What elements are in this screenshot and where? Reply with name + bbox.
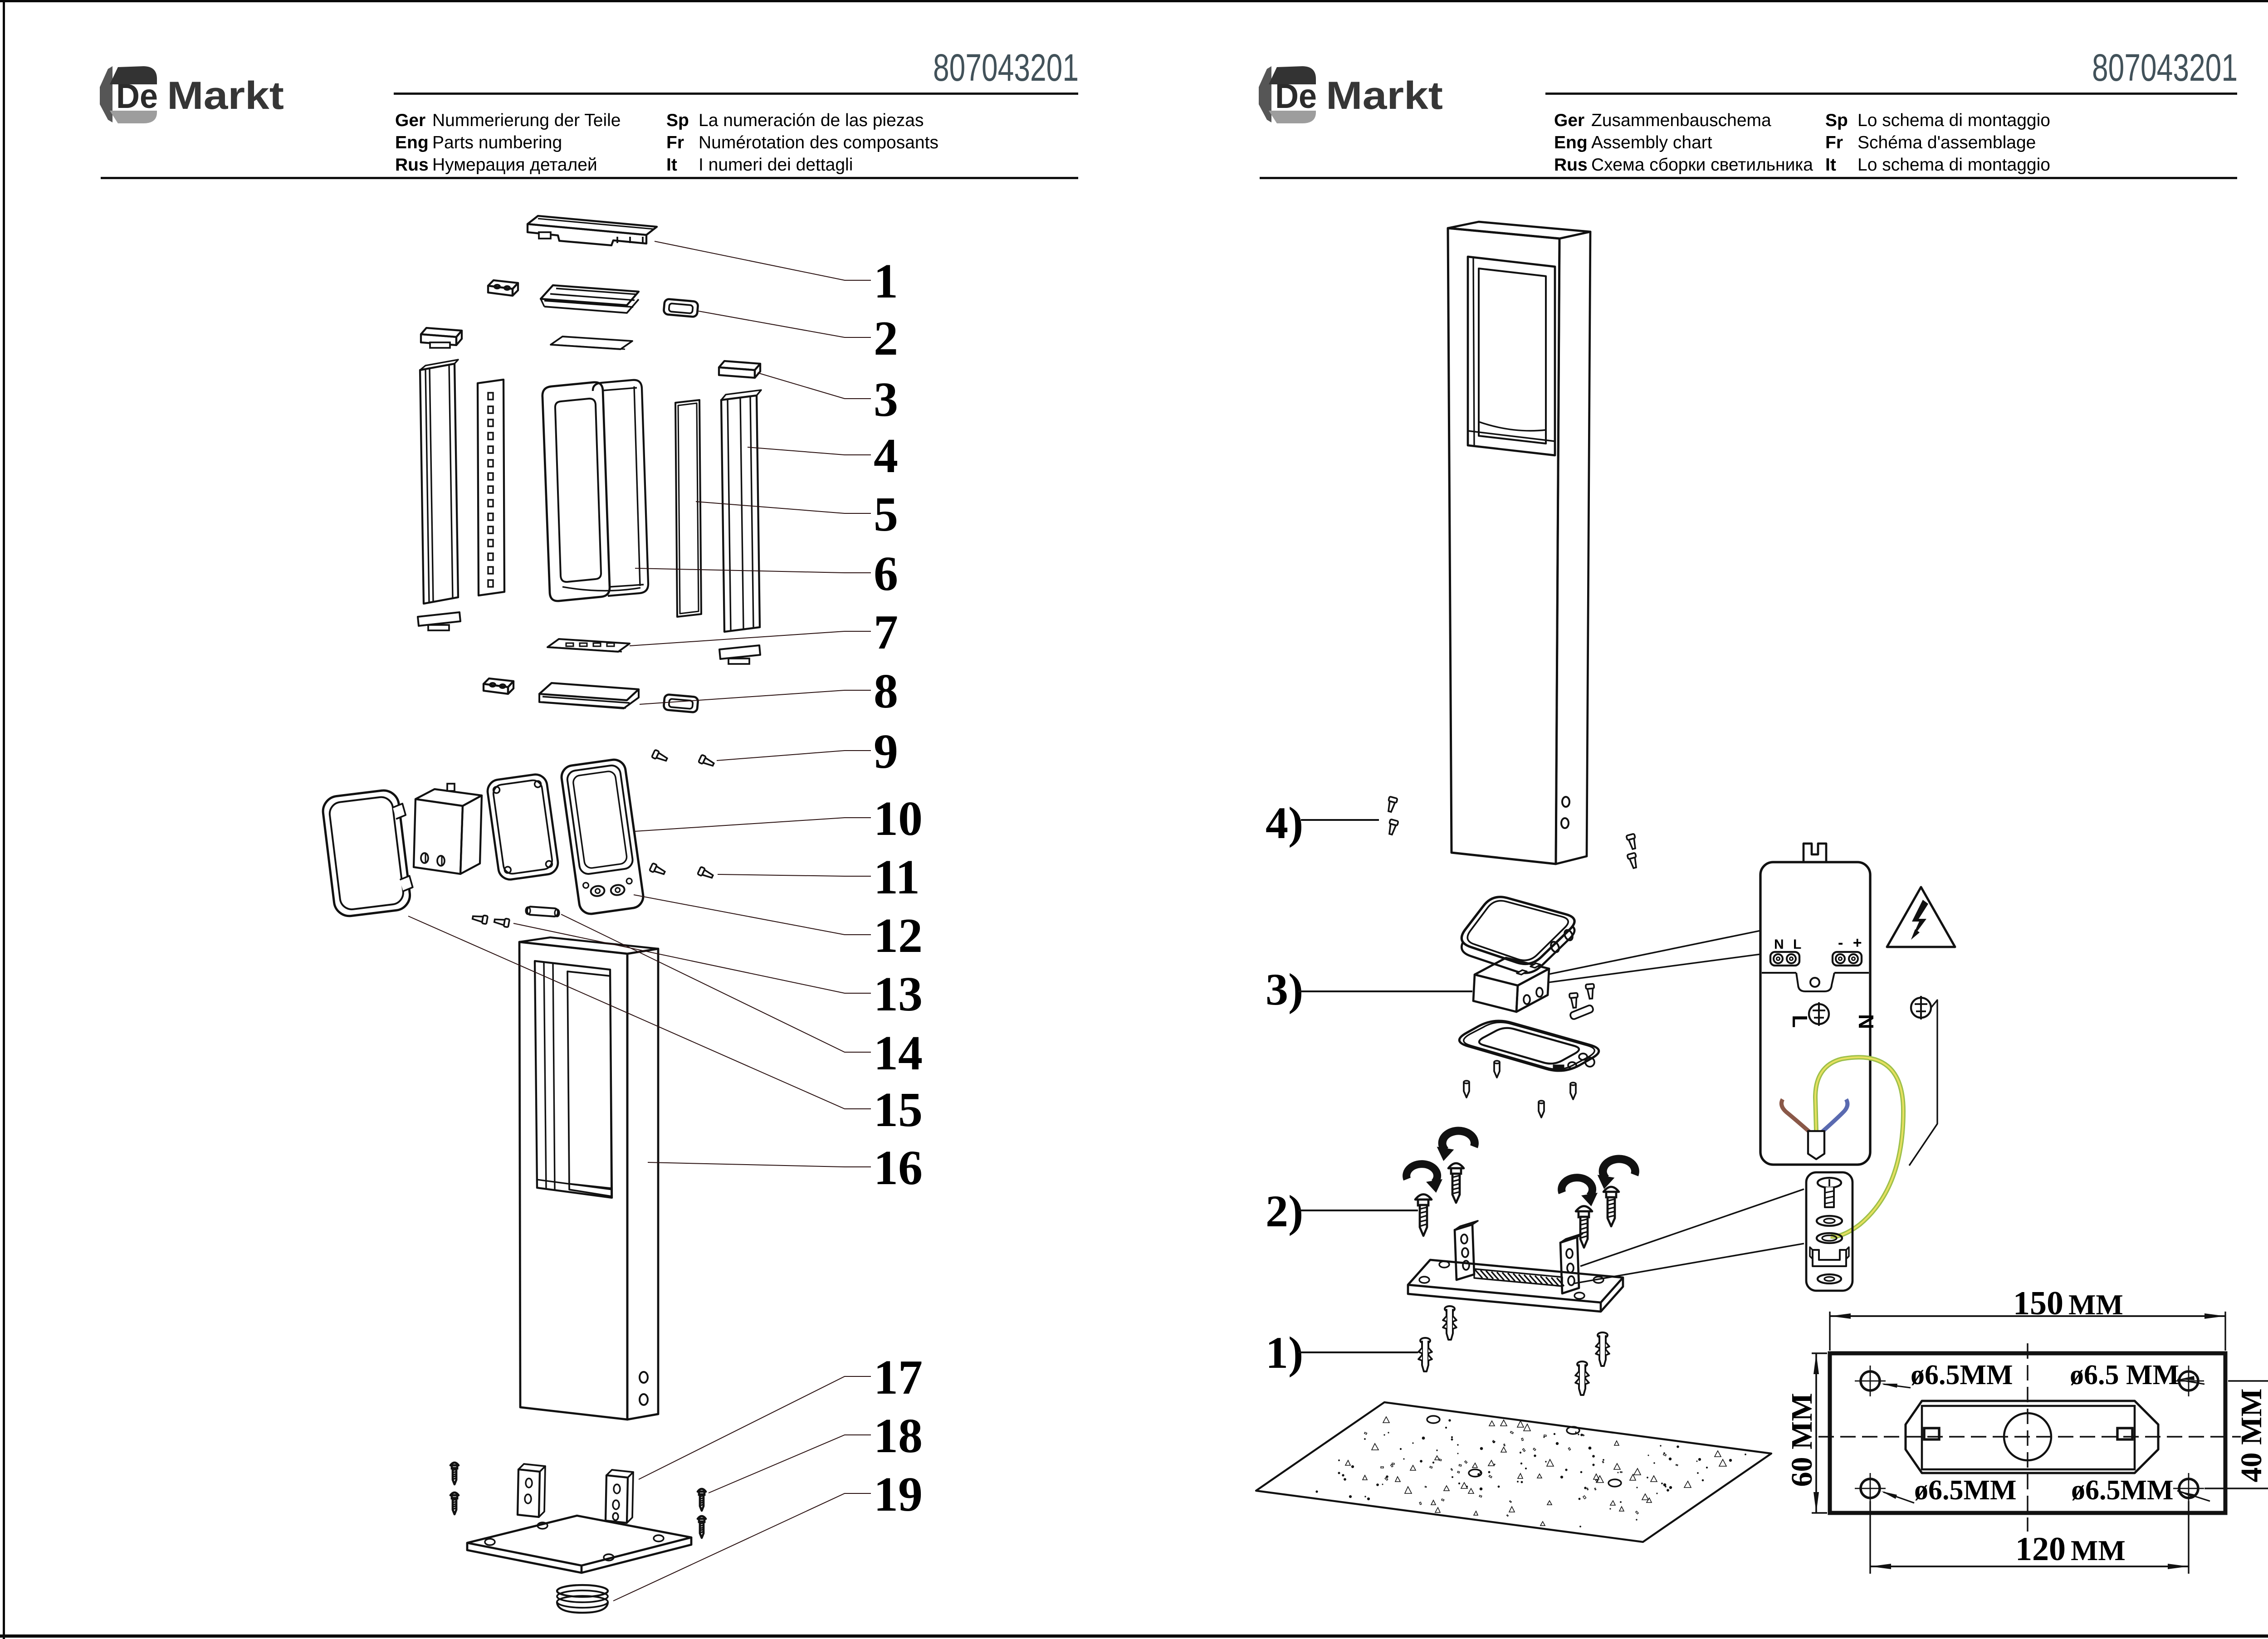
svg-text:9: 9: [874, 725, 898, 779]
svg-text:60 MM: 60 MM: [1785, 1393, 1818, 1487]
svg-text:Sp: Sp: [666, 111, 689, 130]
svg-text:Eng: Eng: [395, 133, 429, 152]
svg-text:Parts numbering: Parts numbering: [432, 133, 562, 152]
svg-text:ø6.5MM: ø6.5MM: [1911, 1360, 2013, 1390]
svg-text:807043201: 807043201: [933, 46, 1079, 89]
svg-text:3): 3): [1266, 964, 1303, 1015]
svg-text:Схема сборки светильника: Схема сборки светильника: [1591, 155, 1813, 175]
svg-text:Fr: Fr: [1825, 133, 1843, 152]
svg-text:Numérotation des composants: Numérotation des composants: [699, 133, 938, 152]
svg-text:11: 11: [874, 850, 920, 904]
svg-text:Sp: Sp: [1825, 111, 1848, 130]
svg-text:Lo schema di montaggio: Lo schema di montaggio: [1857, 155, 2050, 175]
svg-text:15: 15: [874, 1083, 923, 1137]
svg-text:1: 1: [874, 254, 898, 308]
svg-text:Eng: Eng: [1554, 133, 1588, 152]
svg-text:ø6.5MM: ø6.5MM: [2071, 1475, 2174, 1506]
svg-text:120: 120: [2015, 1531, 2066, 1568]
svg-text:ø6.5 MM: ø6.5 MM: [2070, 1360, 2179, 1390]
svg-text:- +: - +: [1838, 934, 1865, 951]
svg-text:It: It: [666, 155, 677, 175]
svg-text:Markt: Markt: [167, 74, 284, 117]
svg-text:4): 4): [1266, 798, 1303, 848]
svg-text:7: 7: [874, 605, 898, 659]
svg-text:2): 2): [1266, 1186, 1303, 1236]
svg-text:16: 16: [874, 1141, 923, 1195]
svg-text:14: 14: [874, 1026, 923, 1080]
svg-text:MM: MM: [2071, 1534, 2126, 1566]
svg-text:La numeración de las piezas: La numeración de las piezas: [699, 111, 924, 130]
svg-text:Fr: Fr: [666, 133, 684, 152]
svg-text:17: 17: [874, 1351, 923, 1405]
svg-text:6: 6: [874, 547, 898, 601]
svg-text:Assembly chart: Assembly chart: [1591, 133, 1712, 152]
svg-text:Ger: Ger: [395, 111, 425, 130]
svg-text:Schéma d'assemblage: Schéma d'assemblage: [1857, 133, 2036, 152]
svg-text:Lo schema di montaggio: Lo schema di montaggio: [1857, 111, 2050, 130]
svg-text:19: 19: [874, 1468, 923, 1522]
svg-text:807043201: 807043201: [2092, 46, 2238, 89]
svg-text:13: 13: [874, 967, 923, 1021]
svg-text:Rus: Rus: [395, 155, 429, 175]
svg-text:It: It: [1825, 155, 1836, 175]
svg-text:Rus: Rus: [1554, 155, 1588, 175]
svg-text:N L: N L: [1774, 937, 1804, 952]
svg-text:ø6.5MM: ø6.5MM: [1914, 1475, 2017, 1506]
svg-text:2: 2: [874, 312, 898, 366]
svg-text:18: 18: [874, 1409, 923, 1463]
svg-text:Markt: Markt: [1326, 74, 1443, 117]
svg-text:3: 3: [874, 373, 898, 427]
svg-text:De: De: [116, 77, 158, 116]
svg-text:Zusammenbauschema: Zusammenbauschema: [1591, 111, 1771, 130]
svg-text:L: L: [1788, 1015, 1812, 1028]
svg-text:12: 12: [874, 909, 923, 963]
svg-text:40 MM: 40 MM: [2235, 1388, 2268, 1482]
svg-text:De: De: [1275, 77, 1317, 116]
svg-text:N: N: [1854, 1014, 1878, 1029]
svg-text:10: 10: [874, 792, 923, 846]
svg-text:4: 4: [874, 429, 898, 483]
svg-text:Ger: Ger: [1554, 111, 1584, 130]
svg-text:5: 5: [874, 488, 898, 541]
svg-text:I numeri dei dettagli: I numeri dei dettagli: [699, 155, 853, 175]
svg-text:Нумерация деталей: Нумерация деталей: [432, 155, 597, 175]
svg-text:1): 1): [1266, 1327, 1303, 1378]
svg-text:Nummerierung der Teile: Nummerierung der Teile: [432, 111, 621, 130]
svg-text:8: 8: [874, 664, 898, 718]
